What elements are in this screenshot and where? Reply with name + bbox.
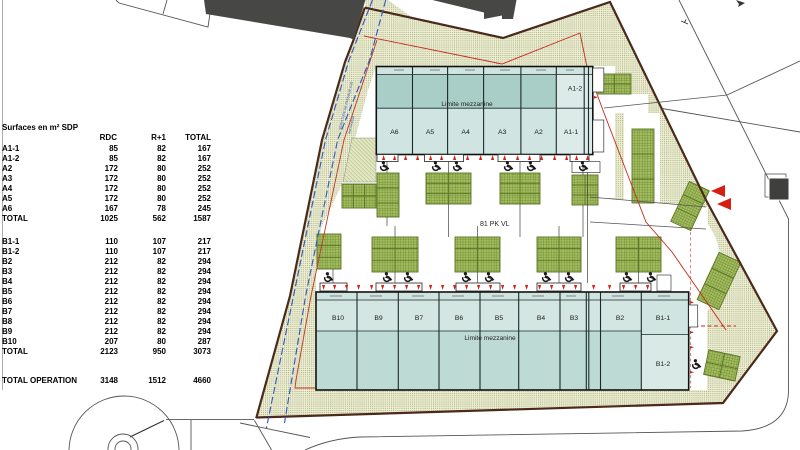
svg-text:A1-1: A1-1 — [564, 129, 579, 136]
svg-text:B7: B7 — [415, 315, 424, 322]
svg-text:A2: A2 — [534, 129, 543, 136]
svg-text:Surfaces en m² SDP: Surfaces en m² SDP — [2, 123, 79, 132]
svg-text:A6: A6 — [390, 129, 399, 136]
svg-text:B4: B4 — [537, 315, 546, 322]
svg-text:Limite mezzanine: Limite mezzanine — [441, 101, 493, 108]
svg-text:B10: B10 — [332, 315, 344, 322]
svg-text:B2: B2 — [616, 315, 625, 322]
svg-text:R+1: R+1 — [151, 133, 166, 142]
svg-text:B1-2: B1-2 — [656, 361, 671, 368]
svg-text:B6: B6 — [455, 315, 464, 322]
svg-text:A4: A4 — [461, 129, 470, 136]
svg-text:B5: B5 — [495, 315, 504, 322]
svg-text:B9: B9 — [374, 315, 383, 322]
svg-text:RDC: RDC — [100, 133, 118, 142]
svg-text:A5: A5 — [426, 129, 435, 136]
svg-text:Limite mezzanine: Limite mezzanine — [464, 335, 516, 342]
svg-text:81 PK VL: 81 PK VL — [480, 221, 510, 228]
svg-text:TOTAL: TOTAL — [185, 133, 211, 142]
svg-text:B3: B3 — [570, 315, 579, 322]
svg-text:B1-1: B1-1 — [656, 315, 671, 322]
svg-text:A1-2: A1-2 — [568, 86, 583, 93]
svg-text:A3: A3 — [498, 129, 507, 136]
